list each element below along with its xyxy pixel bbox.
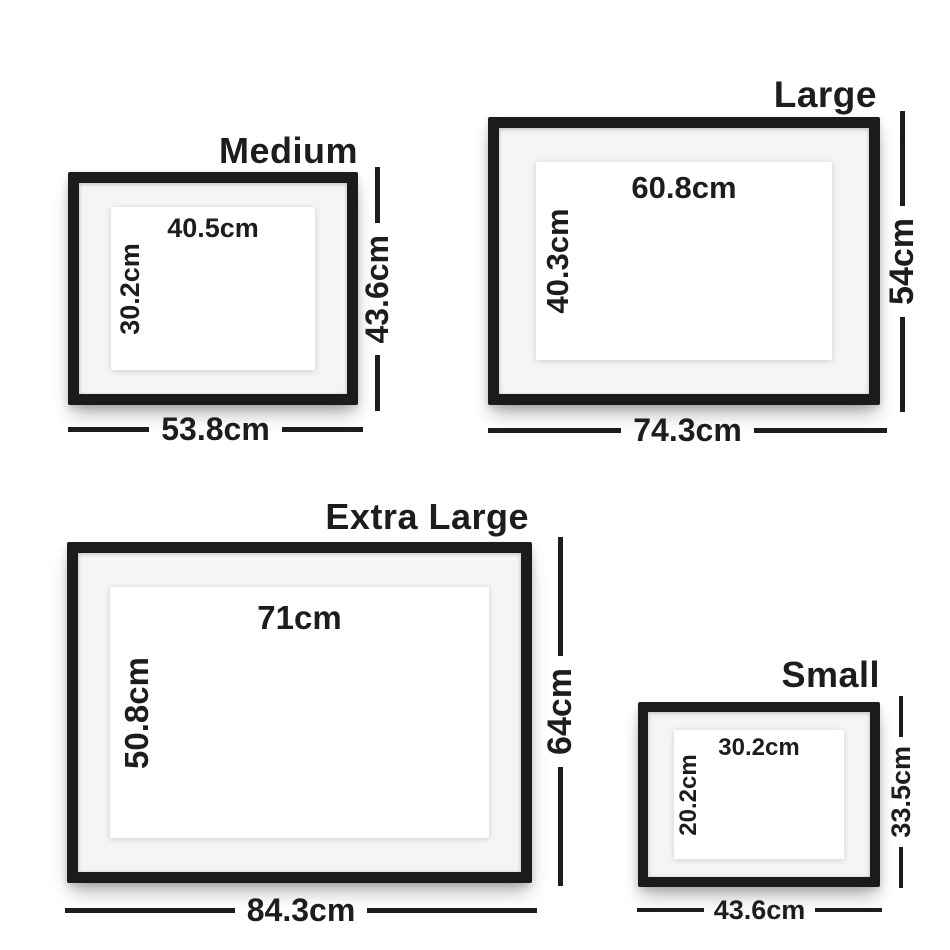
dimension-line <box>65 908 235 913</box>
frame-width-value: 43.6cm <box>714 895 806 926</box>
frame-opening: 40.5cm 30.2cm <box>111 207 315 370</box>
frame-title-large: Large <box>774 74 877 116</box>
frame-height-value: 64cm <box>541 668 580 755</box>
frame-height-dimension: 64cm <box>538 537 582 886</box>
frame-width-value: 53.8cm <box>161 411 270 448</box>
frame-opening: 30.2cm 20.2cm <box>674 730 844 859</box>
dimension-line <box>558 537 563 656</box>
frame-height-value: 43.6cm <box>359 235 396 344</box>
dimension-line <box>488 428 621 433</box>
frame-height-dimension: 33.5cm <box>879 696 923 888</box>
print-height-label: 40.3cm <box>540 208 576 313</box>
print-width-label: 71cm <box>110 599 489 637</box>
dimension-line <box>375 167 380 223</box>
dimension-line <box>899 696 903 737</box>
print-height-label: 30.2cm <box>115 243 146 335</box>
frame-height-value: 54cm <box>883 218 922 305</box>
dimension-line <box>68 427 149 432</box>
frame-width-dimension: 43.6cm <box>637 888 882 932</box>
print-height-label: 20.2cm <box>675 754 703 835</box>
frame-title-extra-large: Extra Large <box>325 496 529 538</box>
print-width-label: 40.5cm <box>111 213 315 244</box>
dimension-line <box>899 847 903 888</box>
dimension-line <box>900 317 905 412</box>
print-width-label: 60.8cm <box>536 170 832 206</box>
dimension-line <box>900 111 905 206</box>
picture-frame-small: 30.2cm 20.2cm <box>638 702 880 887</box>
frame-mat: 40.5cm 30.2cm <box>79 183 347 394</box>
frame-size-guide: Medium 40.5cm 30.2cm 43.6cm 53.8cm Large <box>0 0 950 950</box>
dimension-line <box>754 428 887 433</box>
frame-opening: 60.8cm 40.3cm <box>536 162 832 360</box>
frame-width-dimension: 74.3cm <box>488 408 887 452</box>
frame-opening: 71cm 50.8cm <box>110 587 489 838</box>
frame-width-dimension: 53.8cm <box>68 407 363 451</box>
dimension-line <box>375 355 380 411</box>
frame-title-medium: Medium <box>219 130 358 172</box>
print-height-label: 50.8cm <box>118 657 156 769</box>
frame-mat: 60.8cm 40.3cm <box>499 128 869 394</box>
frame-height-dimension: 54cm <box>880 111 924 412</box>
frame-title-small: Small <box>781 654 880 696</box>
frame-mat: 71cm 50.8cm <box>78 553 521 872</box>
frame-height-dimension: 43.6cm <box>355 167 399 411</box>
frame-height-value: 33.5cm <box>886 746 917 838</box>
dimension-line <box>367 908 537 913</box>
frame-width-value: 74.3cm <box>633 412 742 449</box>
frame-width-dimension: 84.3cm <box>65 888 537 932</box>
dimension-line <box>558 767 563 886</box>
frame-mat: 30.2cm 20.2cm <box>648 712 870 877</box>
dimension-line <box>282 427 363 432</box>
dimension-line <box>637 908 704 912</box>
dimension-line <box>815 908 882 912</box>
frame-width-value: 84.3cm <box>247 892 356 929</box>
picture-frame-large: 60.8cm 40.3cm <box>488 117 880 405</box>
picture-frame-extra-large: 71cm 50.8cm <box>67 542 532 883</box>
picture-frame-medium: 40.5cm 30.2cm <box>68 172 358 405</box>
